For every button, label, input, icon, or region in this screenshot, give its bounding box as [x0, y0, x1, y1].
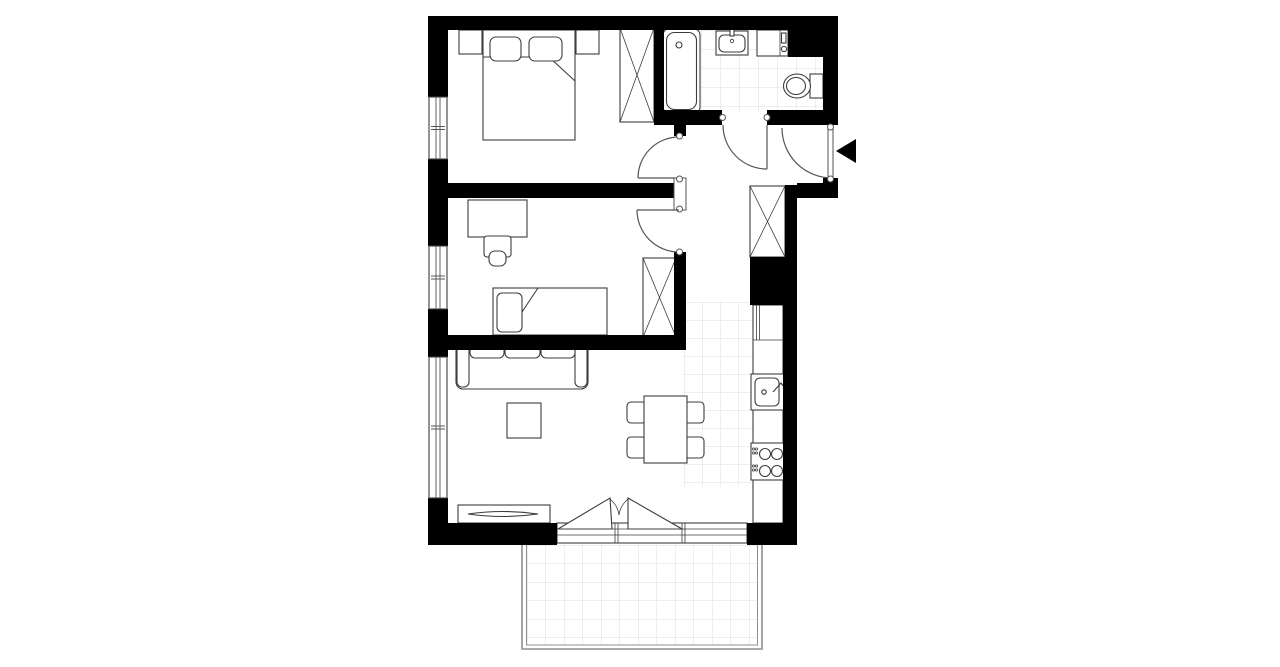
stove: [751, 443, 786, 480]
dining-chair: [627, 437, 646, 458]
balcony-tiled-floor: [527, 545, 757, 645]
kitchen-tiled-floor: [684, 302, 753, 487]
dining-chair: [627, 402, 646, 423]
single-bed-pillow: [497, 293, 522, 332]
wall-bathroom-south-right: [767, 110, 823, 125]
windows: [429, 97, 447, 498]
balcony-double-door: [557, 498, 747, 543]
wall-top: [428, 16, 838, 30]
wall-left-seg1: [428, 30, 448, 97]
bedroom-1: [459, 28, 654, 140]
entrance-arrow-marker: [836, 139, 856, 163]
pillow-right: [529, 37, 562, 61]
balcony-door-left-leaf: [558, 498, 612, 529]
wall-bottom-right: [747, 523, 797, 545]
wall-bedroom1-bathroom: [654, 30, 664, 110]
dining-chair: [685, 402, 704, 423]
wall-entrance-arm: [797, 183, 838, 198]
balcony-door-right-leaf: [628, 498, 682, 529]
coffee-table: [507, 403, 541, 438]
kitchen: [751, 305, 786, 523]
toilet-tank: [810, 74, 823, 98]
wall-right-bathroom: [823, 30, 838, 125]
bathroom-door: [720, 115, 771, 170]
wall-bedroom2-east: [674, 252, 686, 350]
balcony: [522, 543, 762, 649]
wall-hall-east: [785, 185, 797, 257]
wall-bathroom-south-left: [654, 110, 722, 125]
bathtub: [663, 29, 700, 113]
window-living-room: [429, 357, 447, 498]
bedroom-1-door: [638, 133, 683, 178]
balcony-door-swing-mark: [610, 499, 628, 515]
nightstand-left: [459, 30, 482, 54]
washing-machine: [757, 30, 788, 56]
washbasin: [716, 28, 748, 55]
wall-bathroom-shaft: [788, 30, 823, 57]
dining-chair: [685, 437, 704, 458]
bedroom-2-door: [637, 210, 683, 255]
nightstand-right: [576, 30, 599, 54]
wall-left-seg2: [428, 159, 448, 246]
door-jamb-post: [674, 178, 686, 210]
dining-table: [644, 396, 687, 463]
living-room: [456, 342, 704, 523]
desk: [468, 200, 527, 237]
floor-plan-drawing: [0, 0, 1280, 667]
wall-bedroom2-living: [428, 335, 686, 350]
toilet: [784, 74, 824, 98]
wall-bedroom1-bedroom2: [428, 183, 686, 198]
floor-plan-page: [0, 0, 1280, 667]
window-bedroom-2: [429, 246, 447, 309]
window-bedroom-1: [429, 97, 447, 159]
hall-wardrobe: [750, 186, 785, 257]
pillow-left: [490, 37, 521, 61]
desk-chair-back: [489, 251, 506, 266]
kitchen-counter: [753, 305, 783, 523]
entrance-door: [782, 124, 834, 182]
kitchen-sink: [751, 374, 786, 410]
bedroom-2: [468, 200, 676, 337]
wall-kitchen-east: [783, 305, 797, 523]
wall-bottom-left: [428, 523, 557, 545]
wall-hall-block: [750, 257, 797, 305]
entrance-door-leaf: [828, 128, 833, 178]
